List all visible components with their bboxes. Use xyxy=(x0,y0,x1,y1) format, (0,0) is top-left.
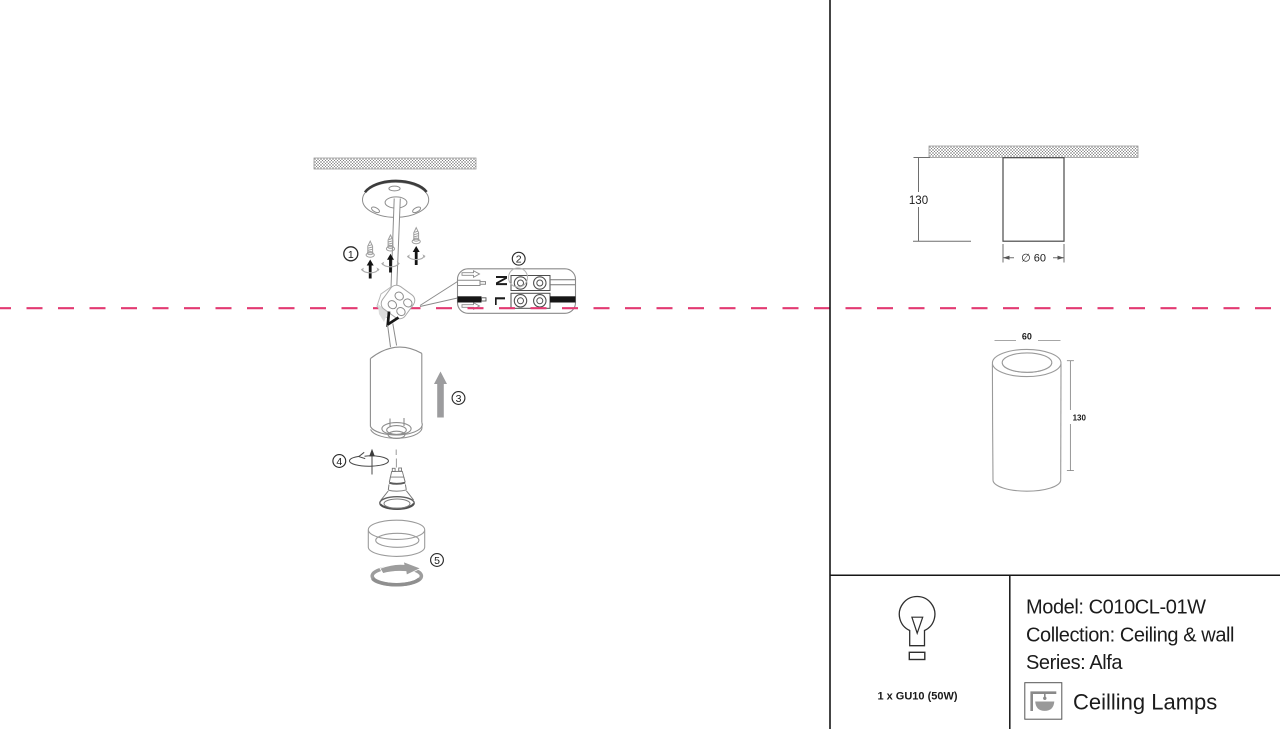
svg-text:4: 4 xyxy=(336,456,342,468)
svg-text:Model: C010CL-01W: Model: C010CL-01W xyxy=(1026,597,1206,619)
svg-text:Collection: Ceiling & wall: Collection: Ceiling & wall xyxy=(1026,624,1234,646)
svg-text:Ceilling Lamps: Ceilling Lamps xyxy=(1073,690,1217,715)
svg-text:N: N xyxy=(492,275,509,286)
svg-text:∅ 60: ∅ 60 xyxy=(1021,253,1046,265)
svg-text:1: 1 xyxy=(348,249,354,261)
svg-text:130: 130 xyxy=(1073,413,1087,422)
svg-text:5: 5 xyxy=(434,555,440,567)
svg-text:L: L xyxy=(491,296,508,305)
svg-text:Series: Alfa: Series: Alfa xyxy=(1026,652,1123,674)
svg-text:60: 60 xyxy=(1022,331,1032,341)
svg-text:3: 3 xyxy=(456,393,462,405)
svg-text:130: 130 xyxy=(909,195,928,207)
svg-text:1 x GU10 (50W): 1 x GU10 (50W) xyxy=(877,691,957,703)
svg-text:2: 2 xyxy=(516,254,522,266)
